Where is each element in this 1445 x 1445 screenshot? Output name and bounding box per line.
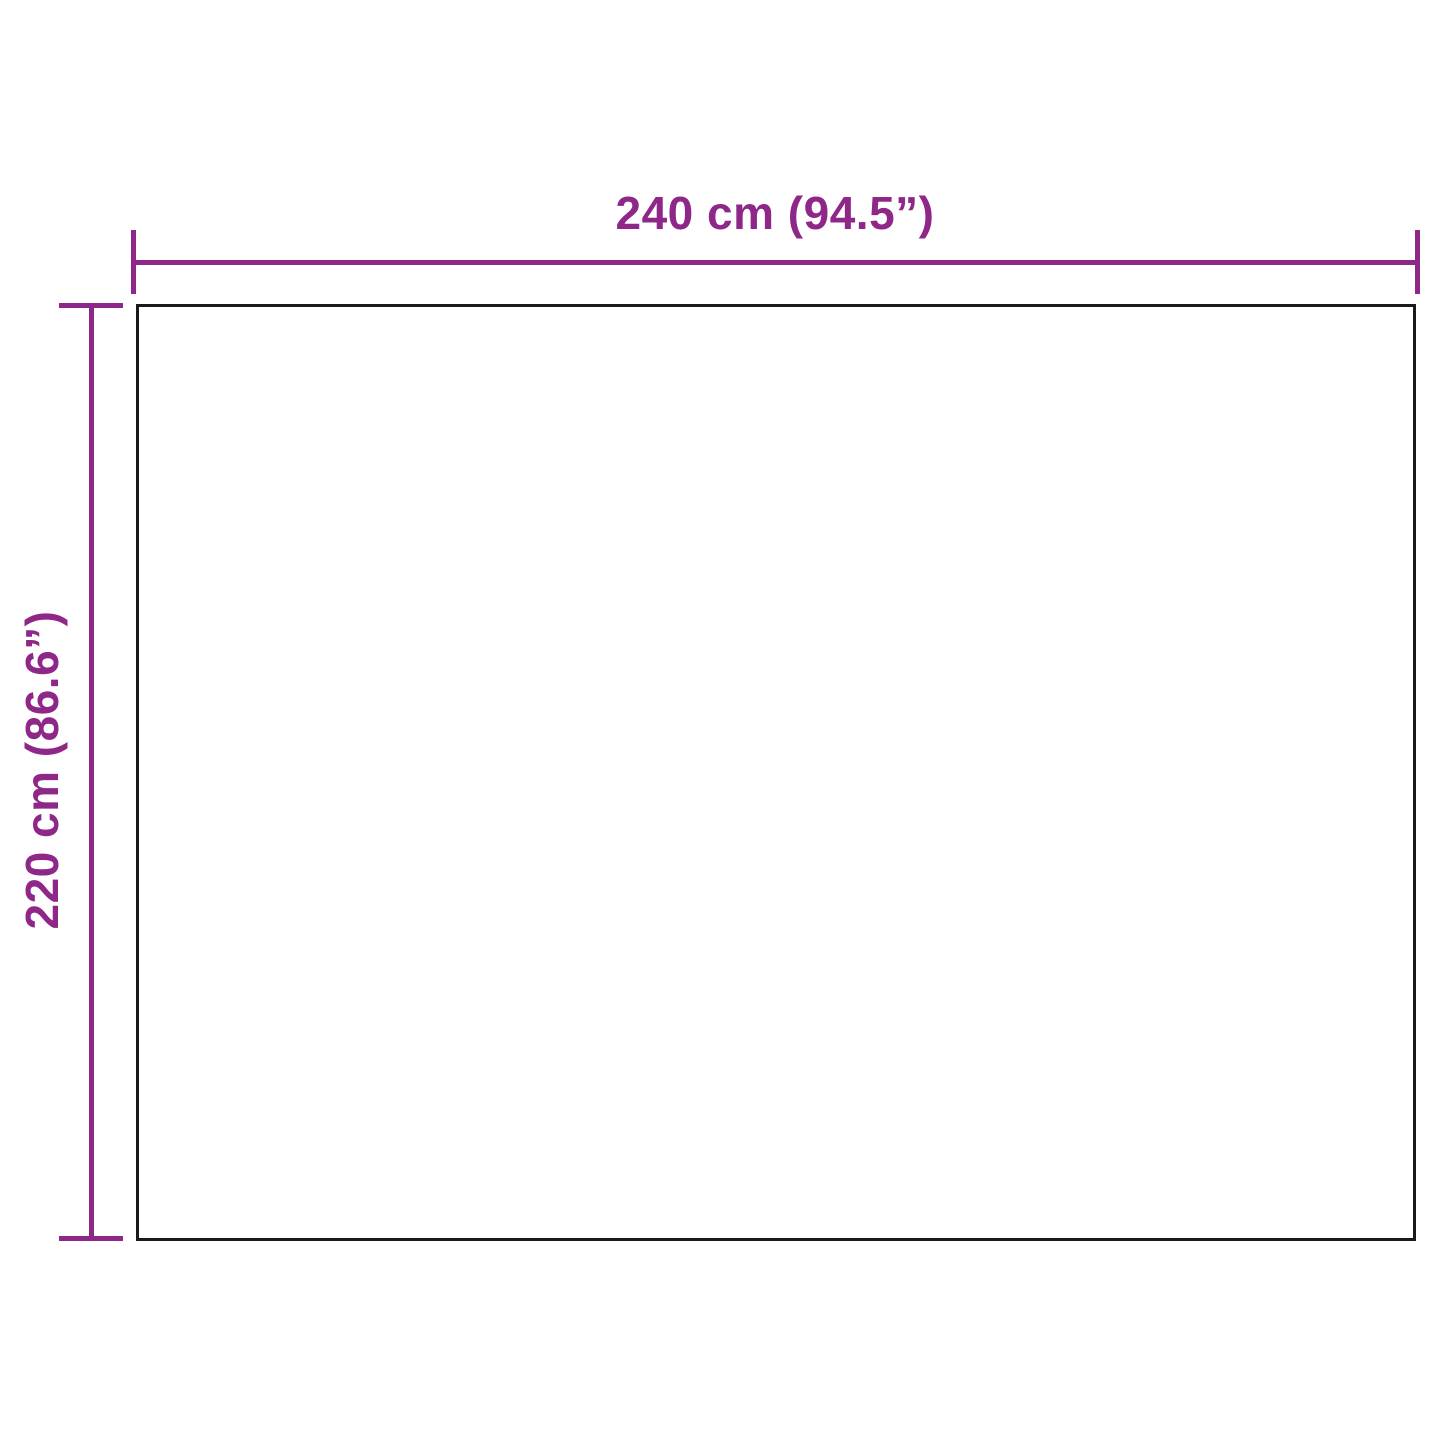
height-dimension-bottom-cap xyxy=(59,1236,123,1241)
height-dimension-top-cap xyxy=(59,303,123,308)
width-dimension-line xyxy=(133,260,1418,265)
width-dimension-right-cap xyxy=(1415,230,1420,294)
dimension-diagram: 240 cm (94.5”) 220 cm (86.6”) xyxy=(0,0,1445,1445)
width-dimension-label: 240 cm (94.5”) xyxy=(616,186,935,240)
height-dimension-label: 220 cm (86.6”) xyxy=(15,611,69,930)
product-outline-rectangle xyxy=(136,304,1416,1241)
width-dimension-left-cap xyxy=(131,230,136,294)
height-dimension-line xyxy=(89,303,94,1241)
